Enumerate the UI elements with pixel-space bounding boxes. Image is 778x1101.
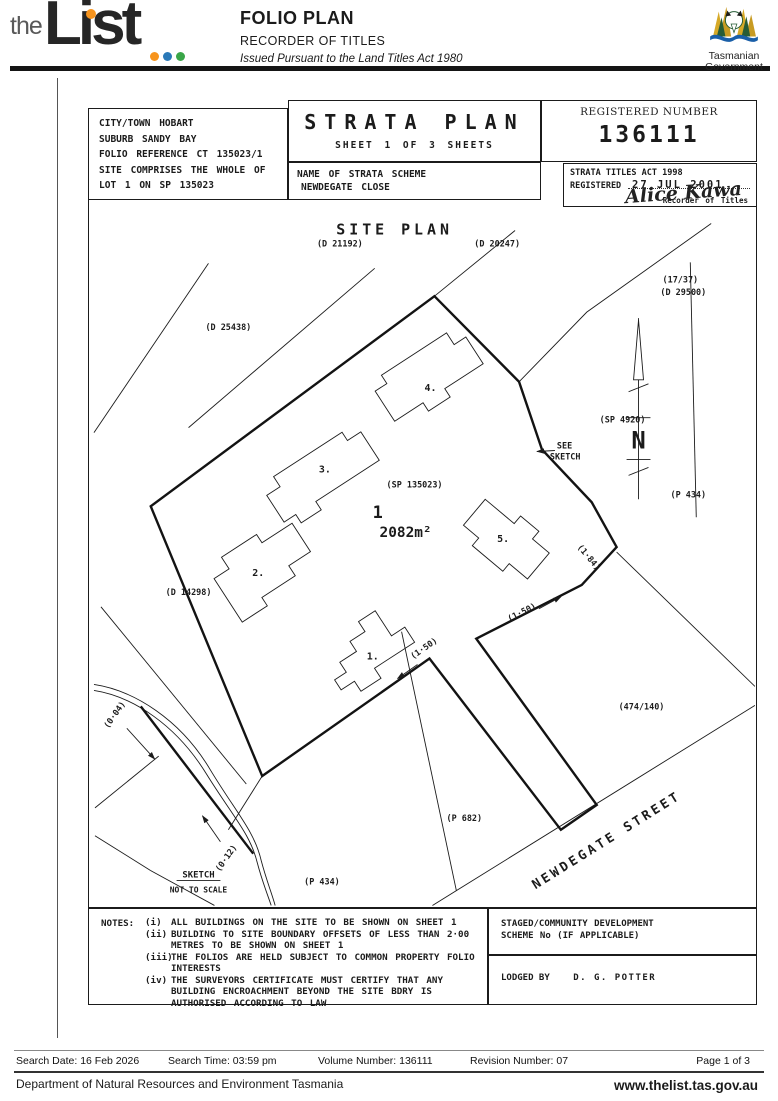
logo-dot-green-icon bbox=[176, 52, 185, 61]
act-line: STRATA TITLES ACT 1998 bbox=[570, 168, 750, 178]
site-boundary bbox=[151, 296, 617, 830]
strata-plan-title-box: STRATA PLAN SHEET 1 OF 3 SHEETS bbox=[288, 100, 541, 162]
folio-plan-page: the List FOLIO PLAN RECORDER OF TITLES I… bbox=[0, 0, 778, 1101]
tasmanian-government-logo: Tasmanian Government bbox=[692, 4, 776, 73]
note-num: (ii) bbox=[145, 929, 171, 952]
header-divider-bar bbox=[10, 66, 770, 71]
site-plan-svg: SITE PLAN bbox=[89, 218, 755, 906]
note-num: (i) bbox=[145, 917, 171, 929]
lot-number: 1 bbox=[373, 502, 383, 522]
notes-label: NOTES: bbox=[101, 918, 134, 930]
site-plan-title: SITE PLAN bbox=[336, 220, 453, 238]
street-name: NEWDEGATE STREET bbox=[530, 789, 684, 893]
registered-number-label: REGISTERED NUMBER bbox=[542, 106, 756, 118]
dim-012: (0·12) bbox=[213, 843, 239, 874]
building-5-label: 5. bbox=[497, 534, 509, 545]
sketch-boundary-line bbox=[141, 706, 253, 853]
note-num: (iii) bbox=[145, 952, 171, 975]
lodged-by-label: LODGED BY bbox=[501, 973, 550, 983]
staged-line2: SCHEME No (IF APPLICABLE) bbox=[501, 930, 744, 942]
note-item: (iii) THE FOLIOS ARE HELD SUBJECT TO COM… bbox=[145, 952, 481, 975]
location-line: SITE COMPRISES THE WHOLE OF bbox=[99, 163, 277, 179]
footer-revision-number: Revision Number: 07 bbox=[470, 1055, 568, 1067]
sketch-title: SKETCH bbox=[182, 871, 214, 881]
parcel-label-17-37: (17/37) bbox=[663, 274, 699, 284]
note-text: ALL BUILDINGS ON THE SITE TO BE SHOWN ON… bbox=[171, 917, 481, 929]
footer-rule-top bbox=[14, 1050, 764, 1051]
registration-stamp-box: STRATA TITLES ACT 1998 REGISTERED 27 JUL… bbox=[563, 163, 757, 207]
location-box: CITY/TOWN HOBART SUBURB SANDY BAY FOLIO … bbox=[88, 108, 288, 200]
logo-i-dot-icon bbox=[86, 9, 96, 19]
building-4-label: 4. bbox=[424, 383, 436, 394]
parcel-label-p682: (P 682) bbox=[446, 813, 482, 823]
scan-edge-line bbox=[57, 78, 58, 1038]
dim-004: (0·04) bbox=[102, 699, 128, 730]
note-text: THE FOLIOS ARE HELD SUBJECT TO COMMON PR… bbox=[171, 952, 481, 975]
parcel-label-p434: (P 434) bbox=[670, 489, 706, 499]
staged-line1: STAGED/COMMUNITY DEVELOPMENT bbox=[501, 918, 744, 930]
parcel-label-474-140: (474/140) bbox=[619, 701, 665, 711]
building-2-label: 2. bbox=[252, 568, 264, 579]
logo-the-text: the bbox=[10, 12, 42, 41]
parcel-label-d14298: (D 14298) bbox=[166, 587, 212, 597]
site-plan-drawing-area: SITE PLAN bbox=[88, 200, 757, 908]
sheet-count: SHEET 1 OF 3 SHEETS bbox=[289, 140, 540, 151]
location-line: CITY/TOWN HOBART bbox=[99, 116, 277, 132]
lodged-by-box: LODGED BY D. G. POTTER bbox=[488, 955, 757, 1005]
footer-department: Department of Natural Resources and Envi… bbox=[16, 1077, 343, 1091]
location-line: LOT 1 ON SP 135023 bbox=[99, 178, 277, 194]
staged-scheme-box: STAGED/COMMUNITY DEVELOPMENT SCHEME No (… bbox=[488, 908, 757, 955]
page-subtitle: RECORDER OF TITLES bbox=[240, 34, 385, 48]
lodged-by-value: D. G. POTTER bbox=[573, 973, 656, 983]
logo-dot-blue-icon bbox=[163, 52, 172, 61]
scheme-name: NEWDEGATE CLOSE bbox=[301, 181, 532, 194]
footer-search-date: Search Date: 16 Feb 2026 bbox=[16, 1055, 139, 1067]
location-line: SUBURB SANDY BAY bbox=[99, 132, 277, 148]
parcel-label-sp135023: (SP 135023) bbox=[387, 479, 443, 489]
thelist-logo: the List bbox=[0, 0, 200, 66]
note-item: (iv) THE SURVEYORS CERTIFICATE MUST CERT… bbox=[145, 975, 481, 1010]
dim-150-b: (1·50) bbox=[506, 601, 538, 624]
note-item: (ii) BUILDING TO SITE BOUNDARY OFFSETS O… bbox=[145, 929, 481, 952]
parcel-label-d20247: (D 20247) bbox=[474, 238, 520, 248]
north-arrow-icon: N bbox=[627, 318, 651, 499]
building-1-label: 1. bbox=[367, 652, 379, 663]
note-text: THE SURVEYORS CERTIFICATE MUST CERTIFY T… bbox=[171, 975, 481, 1010]
note-num: (iv) bbox=[145, 975, 171, 1010]
gov-logo-line2: Government bbox=[692, 62, 776, 73]
scheme-label: NAME OF STRATA SCHEME bbox=[297, 168, 532, 181]
strata-plan-title: STRATA PLAN bbox=[289, 110, 540, 134]
lot-area: 2082m² bbox=[380, 525, 432, 541]
page-title: FOLIO PLAN bbox=[240, 8, 354, 29]
scheme-name-box: NAME OF STRATA SCHEME NEWDEGATE CLOSE bbox=[288, 162, 541, 200]
see-sketch-line1: SEE bbox=[557, 441, 572, 451]
location-line: FOLIO REFERENCE CT 135023/1 bbox=[99, 147, 277, 163]
registered-label: REGISTERED bbox=[570, 181, 621, 191]
note-item: (i) ALL BUILDINGS ON THE SITE TO BE SHOW… bbox=[145, 917, 481, 929]
parcel-label-p434-sketch: (P 434) bbox=[304, 877, 340, 887]
tasmanian-government-emblem-icon bbox=[704, 4, 764, 46]
notes-box: NOTES: (i) ALL BUILDINGS ON THE SITE TO … bbox=[88, 908, 488, 1005]
footer-page-number: Page 1 of 3 bbox=[696, 1055, 750, 1067]
footer-website: www.thelist.tas.gov.au bbox=[614, 1078, 758, 1093]
sketch-subtitle: NOT TO SCALE bbox=[170, 886, 228, 895]
recorder-title: Recorder of Titles bbox=[663, 196, 748, 205]
footer-search-time: Search Time: 03:59 pm bbox=[168, 1055, 277, 1067]
footer-volume-number: Volume Number: 136111 bbox=[318, 1055, 433, 1067]
north-letter: N bbox=[631, 427, 645, 455]
logo-dot-orange-icon bbox=[150, 52, 159, 61]
footer-rule-bottom bbox=[14, 1071, 764, 1073]
registered-number-value: 136111 bbox=[542, 122, 756, 148]
registered-number-box: REGISTERED NUMBER 136111 bbox=[541, 100, 757, 162]
note-text: BUILDING TO SITE BOUNDARY OFFSETS OF LES… bbox=[171, 929, 481, 952]
parcel-label-d21192: (D 21192) bbox=[317, 238, 363, 248]
dim-184: (1·84) bbox=[575, 542, 602, 572]
see-sketch-line2: SKETCH bbox=[550, 451, 581, 461]
building-3-label: 3. bbox=[319, 464, 331, 475]
parcel-label-d25438: (D 25438) bbox=[205, 322, 251, 332]
parcel-label-d29500: (D 29500) bbox=[660, 287, 706, 297]
page-tagline: Issued Pursuant to the Land Titles Act 1… bbox=[240, 53, 463, 65]
